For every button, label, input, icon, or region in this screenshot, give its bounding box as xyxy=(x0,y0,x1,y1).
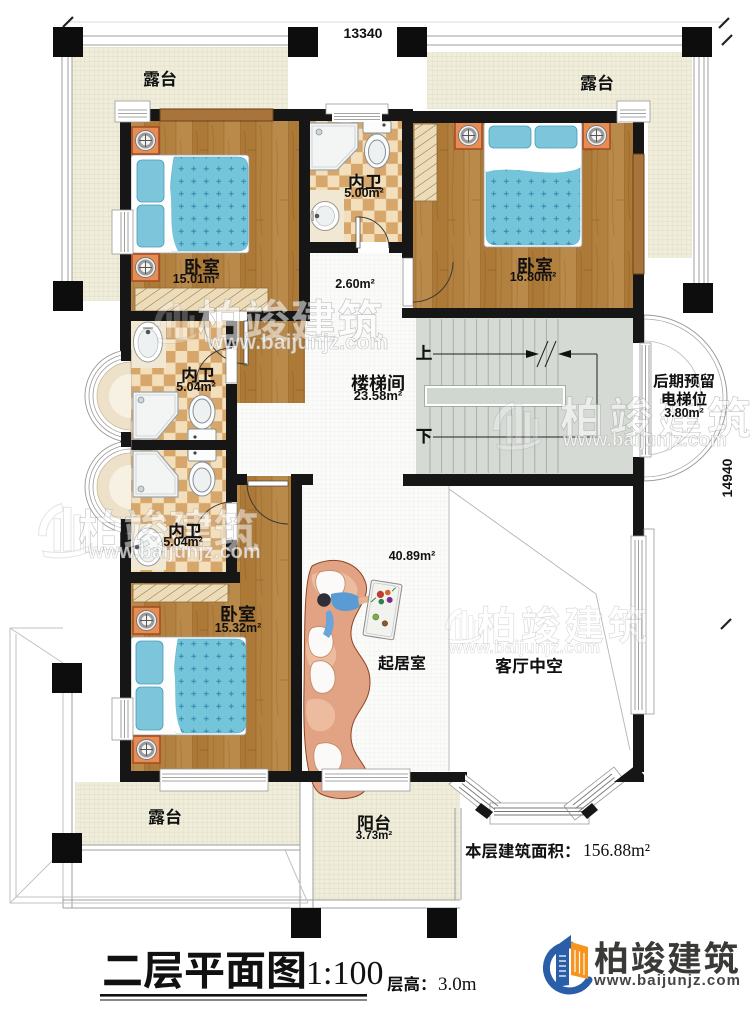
svg-text:5.04m²: 5.04m² xyxy=(176,380,216,394)
svg-text:15.32m²: 15.32m² xyxy=(215,621,262,635)
svg-text:3.80m²: 3.80m² xyxy=(664,406,704,420)
svg-text:www.baijunjz.com: www.baijunjz.com xyxy=(562,430,727,451)
svg-text:23.58m²: 23.58m² xyxy=(354,388,403,403)
svg-text:156.88m²: 156.88m² xyxy=(583,840,650,860)
svg-text:www.baijunjz.com: www.baijunjz.com xyxy=(448,637,600,657)
svg-text:www.baijunjz.com: www.baijunjz.com xyxy=(206,331,388,354)
svg-text:www.baijunjz.com: www.baijunjz.com xyxy=(593,972,741,989)
svg-text:15.01m²: 15.01m² xyxy=(173,272,220,286)
svg-text:5.00m²: 5.00m² xyxy=(344,186,384,200)
svg-text:16.80m²: 16.80m² xyxy=(510,270,557,284)
svg-text:14940: 14940 xyxy=(719,458,735,497)
svg-text:13340: 13340 xyxy=(344,25,383,41)
svg-text:1:100: 1:100 xyxy=(306,955,383,992)
svg-text:2.60m²: 2.60m² xyxy=(335,277,375,291)
svg-text:5.04m²: 5.04m² xyxy=(163,535,203,549)
svg-text:40.89m²: 40.89m² xyxy=(389,549,436,563)
svg-text:3.0m: 3.0m xyxy=(438,974,477,995)
svg-text:3.73m²: 3.73m² xyxy=(356,830,393,842)
